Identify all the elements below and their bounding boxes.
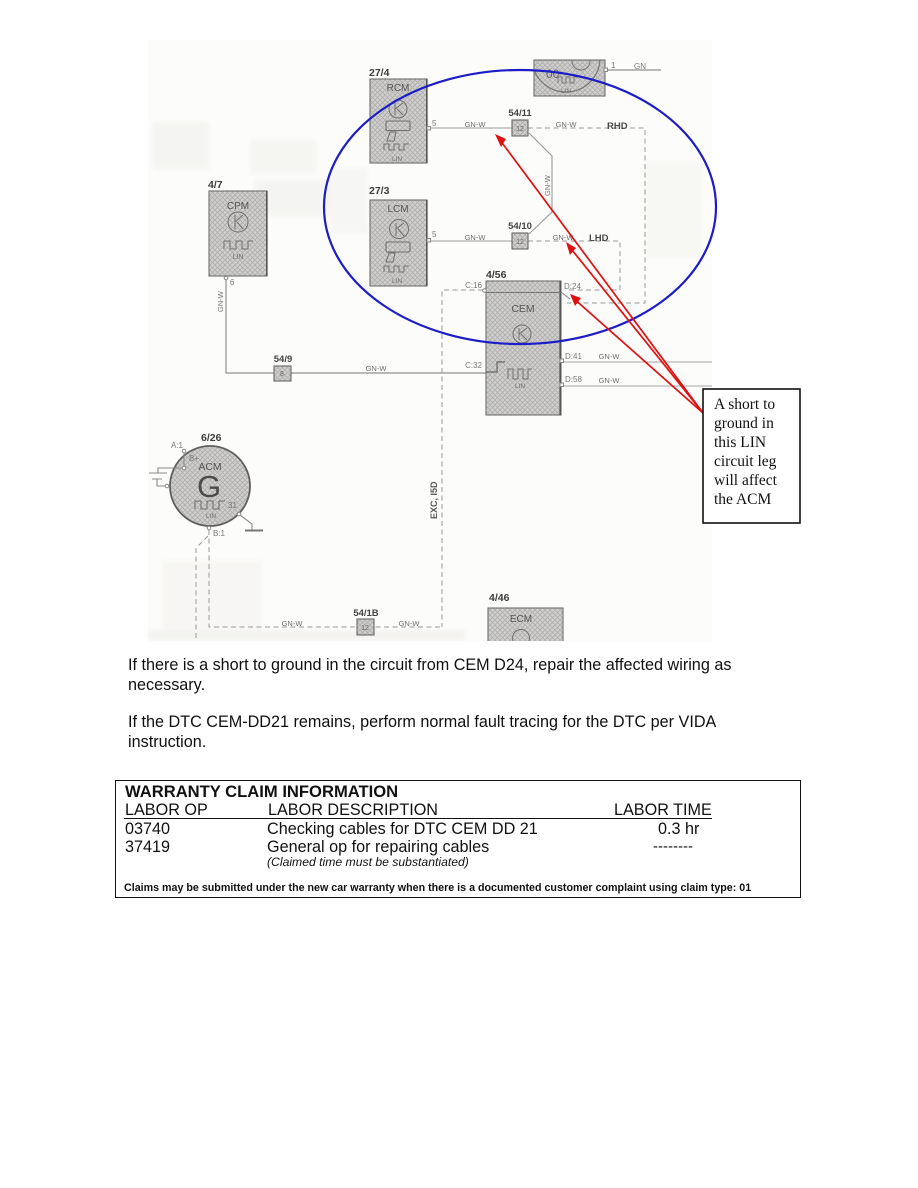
svg-text:D:24: D:24 [564,282,581,291]
svg-text:GN-W: GN-W [599,352,621,361]
svg-text:6/26: 6/26 [201,432,222,444]
svg-text:12: 12 [516,126,524,133]
svg-text:12: 12 [516,239,524,246]
svg-text:54/9: 54/9 [274,354,293,365]
svg-text:LIN: LIN [392,156,402,163]
svg-text:A:1: A:1 [171,441,184,450]
svg-text:GN-W: GN-W [216,290,225,312]
svg-text:LIN: LIN [561,88,571,95]
svg-text:GN-W: GN-W [599,376,621,385]
svg-text:GN-W: GN-W [399,619,421,628]
svg-text:6: 6 [230,278,235,287]
svg-text:C:32: C:32 [465,361,482,370]
svg-text:RCM: RCM [387,83,410,94]
svg-text:LIN: LIN [206,513,216,520]
svg-text:GN-W: GN-W [282,619,304,628]
svg-text:ECM: ECM [510,614,532,625]
svg-text:GN-W: GN-W [465,120,487,129]
svg-text:CEM: CEM [511,303,534,315]
svg-text:EXC, I5D: EXC, I5D [429,481,439,519]
svg-text:4/7: 4/7 [208,179,223,191]
svg-text:54/1B: 54/1B [353,608,378,619]
svg-text:RHD: RHD [607,121,628,132]
svg-text:LCM: LCM [387,204,408,215]
svg-text:54/10: 54/10 [508,221,532,232]
svg-text:5: 5 [432,230,437,239]
svg-text:12: 12 [361,625,369,632]
svg-text:D:58: D:58 [565,375,582,384]
svg-text:5: 5 [432,119,437,128]
svg-text:54/11: 54/11 [508,108,532,119]
svg-text:27/4: 27/4 [369,67,390,79]
svg-text:GN-W: GN-W [543,174,552,196]
svg-text:GN: GN [634,62,646,71]
svg-text:8: 8 [280,371,284,378]
svg-text:GN-W: GN-W [556,120,578,129]
svg-text:G: G [197,469,221,504]
svg-text:C:16: C:16 [465,281,482,290]
svg-text:31: 31 [228,501,237,510]
svg-text:LIN: LIN [392,278,402,285]
svg-text:LHD: LHD [589,233,609,244]
svg-text:CPM: CPM [227,201,249,212]
svg-text:LIN: LIN [515,383,525,390]
svg-text:LIN: LIN [233,254,244,261]
svg-text:B:1: B:1 [213,529,226,538]
svg-text:1: 1 [611,61,616,70]
svg-text:4/46: 4/46 [489,592,510,604]
svg-text:4/56: 4/56 [486,269,507,281]
svg-text:B+: B+ [189,454,199,463]
svg-text:D:41: D:41 [565,352,582,361]
svg-text:GN-W: GN-W [465,233,487,242]
svg-text:GN-W: GN-W [366,364,388,373]
svg-text:27/3: 27/3 [369,185,390,197]
